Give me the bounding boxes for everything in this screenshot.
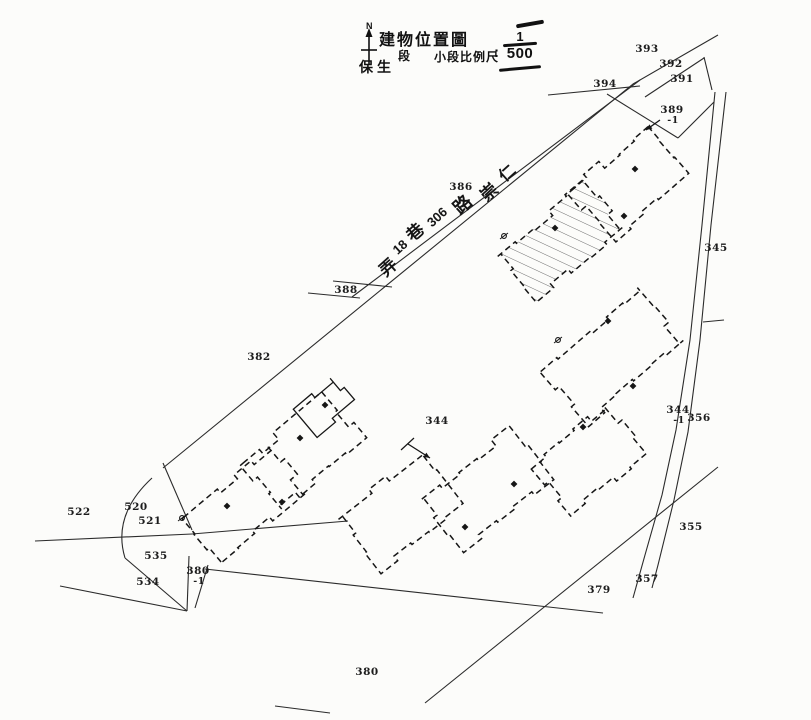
nw-boundary	[163, 35, 718, 468]
survey-point-icon	[224, 503, 231, 510]
divider-520	[163, 463, 192, 530]
south-boundary	[205, 569, 603, 613]
building-subject-hatched	[498, 180, 623, 302]
survey-point-icon	[605, 318, 612, 325]
arrow-344-bar	[401, 438, 414, 450]
se-diagonal	[425, 467, 718, 703]
road-upper-edge	[352, 80, 640, 297]
map-title: 建物位置圖	[379, 26, 469, 50]
west-corner-arc	[122, 478, 152, 558]
survey-point-icon	[621, 213, 628, 220]
scale-colon: :	[494, 44, 499, 61]
scale-denominator: 500	[503, 46, 537, 62]
site-plan-canvas: 393392391394389-1386345388382344344-1356…	[0, 0, 811, 720]
east-road-right	[652, 92, 726, 588]
building-left-upper	[240, 392, 367, 509]
survey-point-icon	[632, 166, 639, 173]
sub380-east	[195, 565, 208, 608]
sub380-west	[187, 556, 189, 611]
boundary-lines	[35, 35, 726, 713]
building-upper-mid	[540, 288, 683, 427]
section-name: 保生	[359, 57, 395, 77]
line-391	[645, 58, 704, 97]
line-389-se	[678, 102, 714, 138]
tick-388-a	[333, 281, 392, 287]
building-outlines	[182, 125, 689, 574]
survey-point-icon	[511, 481, 518, 488]
section-suffix: 段	[398, 47, 410, 64]
line-534-upper	[125, 558, 187, 611]
east-road-left	[633, 92, 715, 598]
stray-south	[275, 706, 330, 713]
scale-fraction: 1 500	[503, 31, 537, 62]
tick-388-b	[308, 293, 360, 298]
line-521	[192, 521, 348, 534]
line-right-conn	[704, 57, 712, 90]
map-drawing	[0, 0, 811, 720]
survey-point-icon	[630, 383, 637, 390]
survey-point-icon	[322, 402, 329, 409]
survey-point-icon	[462, 524, 469, 531]
survey-point-icon	[279, 499, 286, 506]
survey-point-icon	[580, 424, 587, 431]
line-534-lower	[60, 586, 187, 611]
west-hline	[35, 534, 192, 541]
road-tick	[703, 320, 724, 322]
building-mid-left	[339, 454, 464, 574]
line-389-sw	[607, 94, 678, 138]
survey-marks	[178, 120, 660, 530]
building-left-lower	[182, 447, 306, 564]
building-mid-right	[531, 407, 646, 516]
survey-point-icon	[297, 435, 304, 442]
scale-label: 小段比例尺	[434, 48, 499, 65]
building-mid-center	[422, 426, 554, 553]
